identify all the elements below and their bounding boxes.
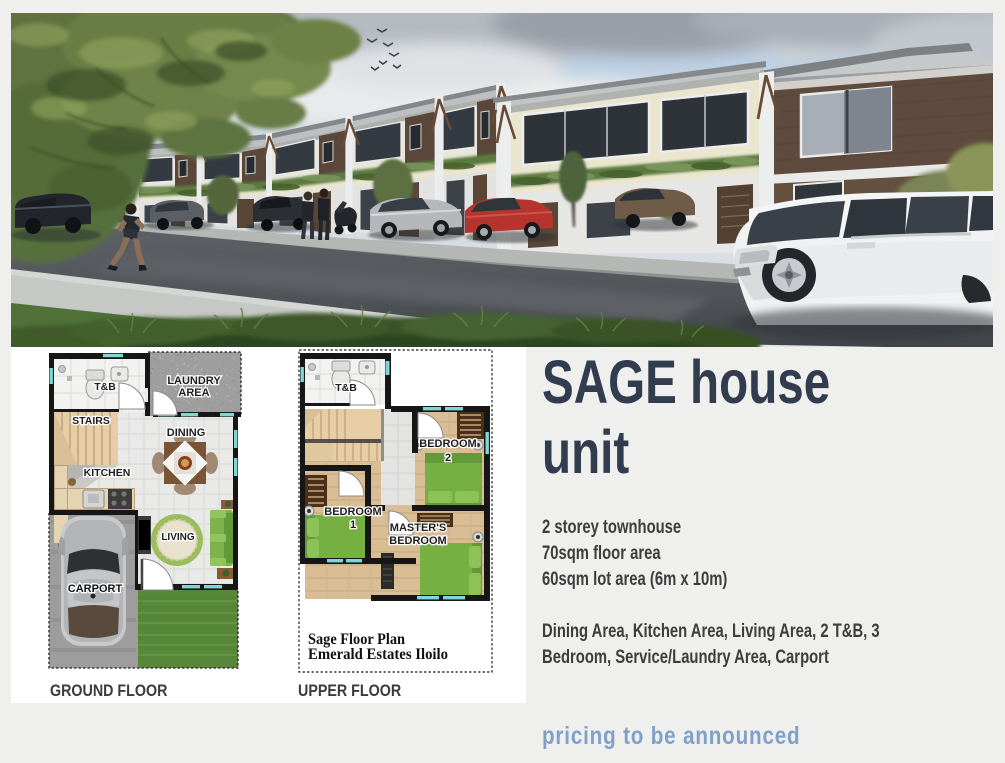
svg-text:T&B: T&B — [94, 381, 116, 393]
svg-text:LIVING: LIVING — [161, 532, 195, 543]
svg-text:LAUNDRY: LAUNDRY — [167, 375, 221, 387]
svg-text:DINING: DINING — [167, 427, 206, 439]
svg-text:Emerald Estates Iloilo: Emerald Estates Iloilo — [308, 646, 448, 663]
svg-text:AREA: AREA — [178, 387, 209, 399]
svg-text:2: 2 — [445, 452, 451, 464]
svg-text:BEDROOM: BEDROOM — [389, 535, 446, 547]
svg-text:T&B: T&B — [335, 382, 357, 394]
svg-text:MASTER'S: MASTER'S — [390, 522, 446, 534]
svg-text:BEDROOM: BEDROOM — [324, 506, 381, 518]
svg-text:1: 1 — [350, 519, 356, 531]
svg-text:STAIRS: STAIRS — [72, 415, 110, 427]
svg-text:CARPORT: CARPORT — [68, 583, 123, 595]
svg-text:KITCHEN: KITCHEN — [84, 467, 131, 479]
svg-text:BEDROOM: BEDROOM — [419, 438, 476, 450]
